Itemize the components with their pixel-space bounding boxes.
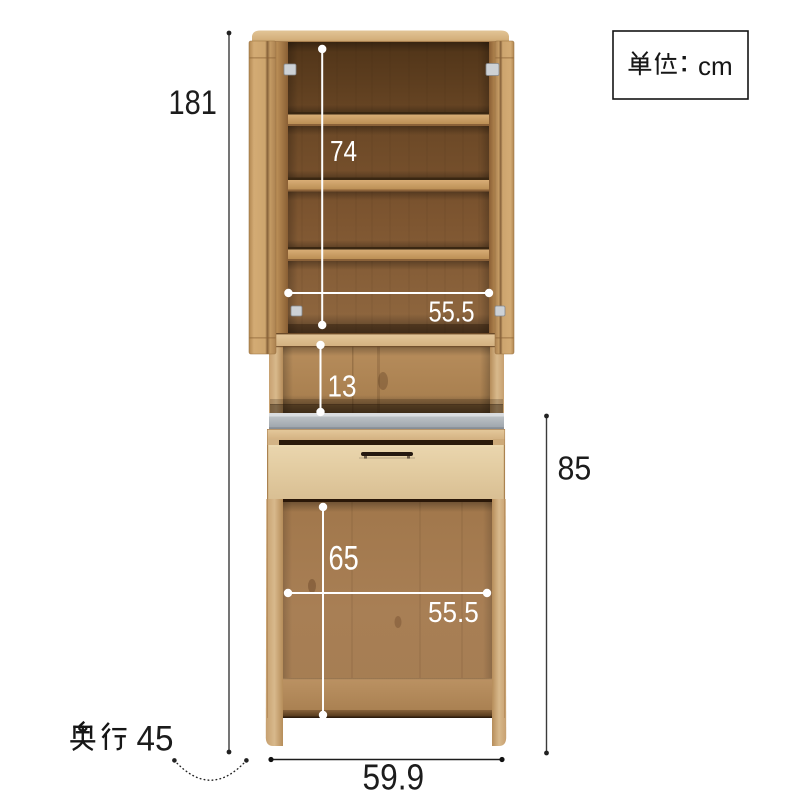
svg-text:55.5: 55.5 <box>428 596 479 629</box>
svg-text:65: 65 <box>329 539 359 578</box>
svg-text:59.9: 59.9 <box>363 758 425 798</box>
svg-text:55.5: 55.5 <box>429 295 475 328</box>
svg-text:74: 74 <box>330 135 357 167</box>
svg-text:45: 45 <box>137 720 174 759</box>
svg-text:cm: cm <box>698 51 733 81</box>
svg-text:181: 181 <box>169 83 217 122</box>
svg-text:13: 13 <box>328 369 357 404</box>
svg-text:85: 85 <box>558 449 592 486</box>
